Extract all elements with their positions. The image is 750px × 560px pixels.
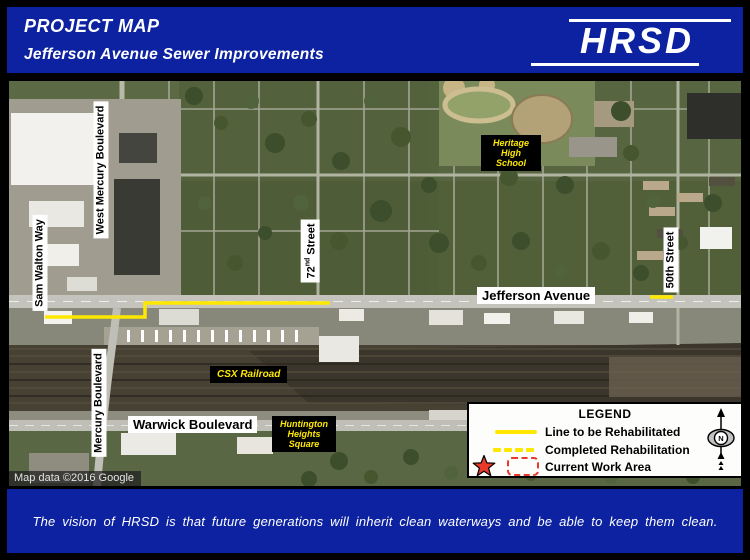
road-label-jefferson-avenue: Jefferson Avenue bbox=[477, 287, 595, 304]
legend-title: LEGEND bbox=[469, 407, 741, 421]
logo-text: HRSD bbox=[541, 21, 733, 61]
project-map-page: PROJECT MAP Jefferson Avenue Sewer Impro… bbox=[0, 0, 750, 560]
street-label-sam-walton-way: Sam Walton Way bbox=[33, 215, 48, 311]
place-label-line: Heritage bbox=[485, 138, 537, 148]
place-label-line: Square bbox=[276, 439, 332, 449]
legend-box: LEGEND Line to be Rehabilitated Complete… bbox=[467, 402, 743, 478]
legend-item-label: Line to be Rehabilitated bbox=[545, 425, 680, 439]
aerial-map: Sam Walton Way West Mercury Boulevard 72… bbox=[7, 79, 743, 488]
street-label-text: 72 bbox=[305, 266, 317, 278]
place-label-line: School bbox=[485, 158, 537, 168]
solid-yellow-line-swatch bbox=[495, 430, 537, 434]
legend-item-label: Completed Rehabilitation bbox=[545, 443, 690, 457]
hrsd-logo: HRSD bbox=[531, 17, 733, 69]
street-label-mercury-boulevard: Mercury Boulevard bbox=[92, 349, 107, 457]
vision-statement: The vision of HRSD is that future genera… bbox=[12, 514, 737, 529]
page-title: PROJECT MAP bbox=[24, 16, 160, 37]
compass-letter: N bbox=[718, 434, 723, 443]
ordinal-suffix: nd bbox=[305, 258, 312, 267]
header-banner: PROJECT MAP Jefferson Avenue Sewer Impro… bbox=[7, 7, 743, 73]
map-attribution: Map data ©2016 Google bbox=[9, 471, 141, 487]
street-label-text: Street bbox=[305, 224, 317, 255]
dash-segment bbox=[515, 448, 523, 452]
street-label-text: 50th Street bbox=[665, 232, 677, 289]
dash-segment bbox=[493, 448, 501, 452]
dash-segment bbox=[504, 448, 512, 452]
street-label-text: Mercury Boulevard bbox=[93, 353, 105, 453]
railroad-corridor bbox=[9, 336, 741, 411]
street-label-text: West Mercury Boulevard bbox=[95, 106, 107, 235]
legend-item-label: Current Work Area bbox=[545, 460, 651, 474]
page-subtitle: Jefferson Avenue Sewer Improvements bbox=[24, 46, 324, 64]
place-label-line: Heights bbox=[276, 429, 332, 439]
place-label-csx-railroad: CSX Railroad bbox=[210, 366, 287, 383]
street-label-72nd-street: 72ndStreet bbox=[301, 220, 320, 283]
logo-rule-bottom bbox=[531, 63, 699, 66]
footer-banner: The vision of HRSD is that future genera… bbox=[7, 489, 743, 553]
place-label-huntington-heights-square: Huntington Heights Square bbox=[272, 416, 336, 452]
road-label-warwick-boulevard: Warwick Boulevard bbox=[128, 416, 257, 433]
dash-segment bbox=[526, 448, 534, 452]
place-label-line: High bbox=[485, 148, 537, 158]
dashed-yellow-line-swatch bbox=[493, 448, 539, 452]
north-arrow-icon: N bbox=[706, 408, 736, 474]
jefferson-avenue-road bbox=[9, 295, 741, 308]
street-label-50th-street: 50th Street bbox=[664, 228, 679, 293]
place-label-heritage-high-school: Heritage High School bbox=[481, 135, 541, 171]
star-icon bbox=[472, 454, 496, 478]
place-label-line: Huntington bbox=[276, 419, 332, 429]
current-work-area-swatch bbox=[507, 457, 539, 476]
street-label-west-mercury-boulevard: West Mercury Boulevard bbox=[94, 102, 109, 239]
street-label-text: Sam Walton Way bbox=[34, 219, 46, 307]
